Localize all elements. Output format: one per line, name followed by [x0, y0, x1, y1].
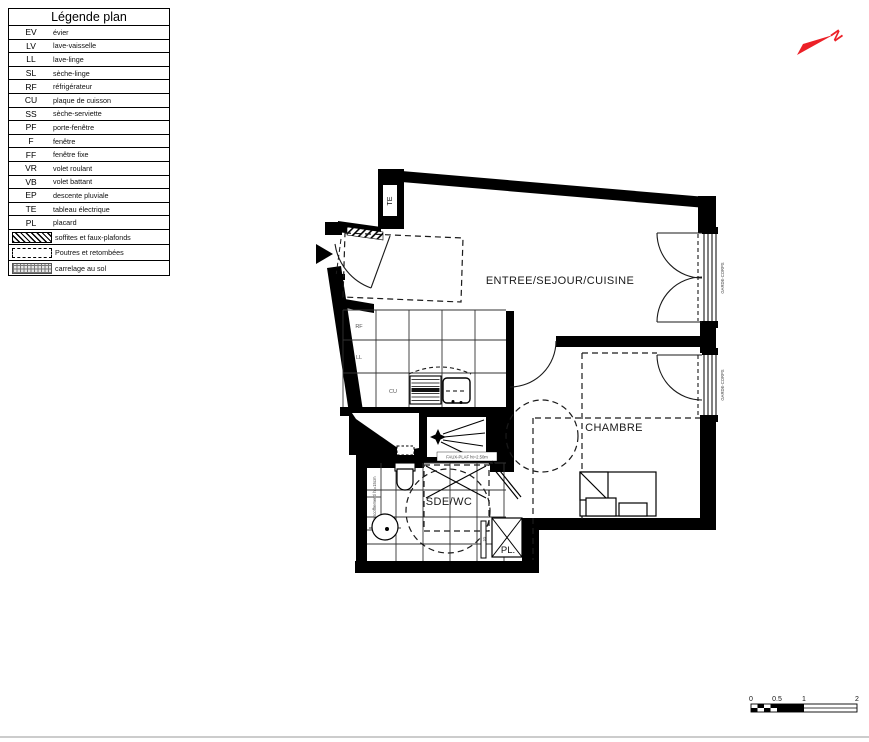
chambre-label: CHAMBRE [585, 422, 643, 434]
bed-icon [580, 472, 656, 516]
entry-beam-dashed [343, 233, 463, 302]
ll-label: LL [356, 355, 362, 361]
rf-label: RF [355, 324, 363, 330]
chambre-window: GARDE-CORPS [657, 355, 725, 415]
scale-bar: 0 0.5 1 2 [749, 696, 859, 712]
garde-corps-label: GARDE-CORPS [720, 262, 725, 293]
pl-label: PL. [501, 545, 515, 556]
walls [325, 169, 718, 573]
encoffrement-label: encoffrement/ ht=15cm [372, 476, 377, 519]
svg-text:0: 0 [749, 696, 753, 703]
svg-text:SS: SS [483, 536, 487, 541]
sde-label: SDE/WC [426, 496, 472, 508]
north-letter: N [827, 27, 846, 44]
faux-plaf-label: FAUX-PLAF ht=2.50m [446, 455, 488, 460]
cooktop-icon [410, 376, 441, 404]
chambre-door [510, 341, 556, 387]
towel-radiator-icon: SS [481, 521, 487, 558]
placard: PL. [492, 518, 522, 557]
entree-label: ENTREE/SEJOUR/CUISINE [486, 275, 634, 287]
garde-corps-label: GARDE-CORPS [720, 369, 725, 400]
svg-text:2: 2 [855, 696, 859, 703]
te-label: TE [387, 196, 394, 205]
entry-door [335, 236, 390, 288]
svg-text:0.5: 0.5 [772, 696, 782, 703]
entrance-arrow [316, 244, 333, 264]
north-arrow: N [797, 27, 846, 55]
cu-label: CU [389, 389, 397, 395]
entry-axis-foot [331, 274, 345, 280]
duct-box [397, 446, 414, 455]
wc-icon [395, 463, 415, 490]
sejour-window: GARDE-CORPS [657, 233, 725, 322]
svg-text:1: 1 [802, 696, 806, 703]
floor-plan-drawing: TE RF LL CU [0, 0, 869, 742]
floorplan-page: Légende plan EVévier LVlave-vaisselle LL… [0, 0, 869, 742]
